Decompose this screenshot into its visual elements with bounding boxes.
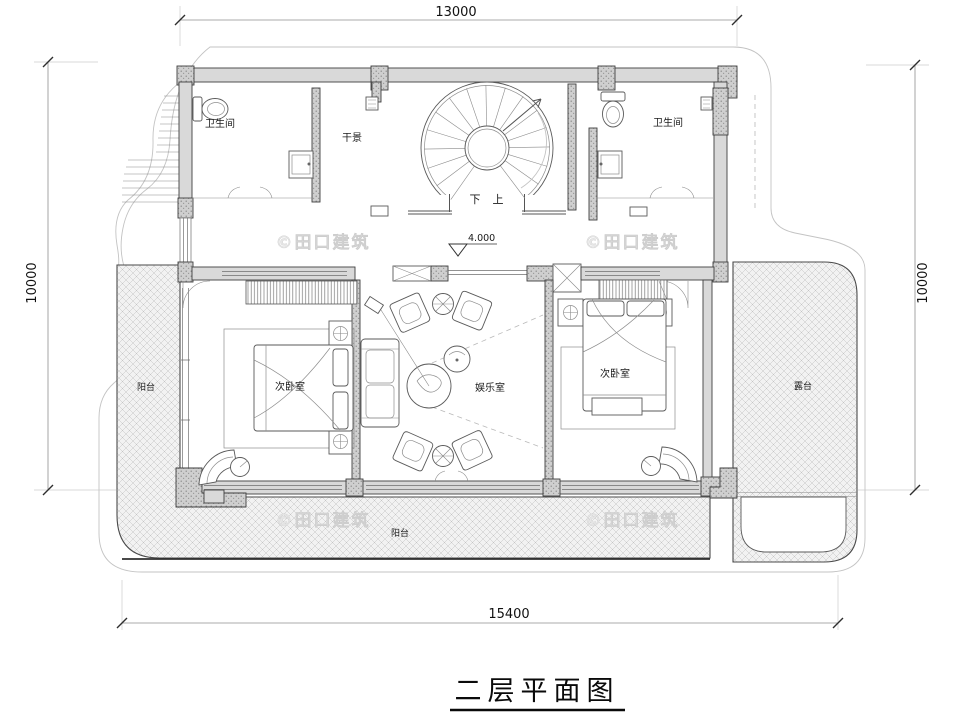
- wall-chunk: [431, 266, 448, 281]
- niche: [630, 207, 647, 216]
- armchair: [451, 290, 492, 331]
- watermark: ©田口建筑: [585, 232, 680, 253]
- dim-bottom-value: 15400: [488, 607, 529, 622]
- lounge-chair: [659, 447, 697, 482]
- title-text: 二层平面图: [455, 676, 620, 707]
- sofa: [361, 339, 399, 427]
- column: [178, 198, 193, 218]
- top-wall: [179, 68, 737, 82]
- wall-insert: [204, 490, 224, 503]
- x-window: [393, 266, 431, 281]
- stair-hall-east-wall: [568, 84, 576, 210]
- stair-down-label: 下: [470, 193, 481, 206]
- column: [713, 88, 728, 135]
- side-table: [231, 458, 250, 477]
- column: [178, 262, 193, 282]
- door-bath-left: [192, 187, 312, 198]
- side-table: [642, 457, 661, 476]
- bath-left-partition: [312, 88, 320, 202]
- elevation-marker: 4.000: [449, 233, 497, 256]
- door-bottom: [435, 471, 468, 481]
- elevation-value: 4.000: [468, 233, 495, 244]
- bath-right-partition: [589, 128, 597, 220]
- nightstand: [329, 321, 352, 346]
- label-balcony-bottom: 阳台: [391, 527, 409, 539]
- left-window: [180, 218, 191, 262]
- label-bathroom-right: 卫生间: [653, 116, 683, 129]
- door-bedroom-left: [183, 281, 210, 308]
- bed-bench: [592, 398, 642, 415]
- mid-wall-left: [192, 267, 355, 280]
- wardrobe: [599, 280, 667, 301]
- label-bedroom-left: 次卧室: [275, 380, 305, 393]
- left-wall-upper: [179, 82, 192, 200]
- wall-chunk: [527, 266, 553, 281]
- spiral-staircase: 下 上: [408, 82, 566, 225]
- label-dry-landscape: 干景: [342, 132, 362, 144]
- bottom-wall: [192, 481, 710, 494]
- armchair: [392, 431, 434, 472]
- bedroom-right-furniture: [558, 280, 697, 482]
- entertainment-furniture: [361, 290, 543, 472]
- label-terrace: 露台: [794, 380, 812, 392]
- label-balcony-left: 阳台: [137, 381, 155, 393]
- dimension-right: 10000: [858, 60, 931, 495]
- dim-right-value: 10000: [916, 262, 931, 303]
- stair-up-label: 上: [493, 193, 504, 206]
- bathroom-right-fixtures: [598, 92, 712, 216]
- armchair: [451, 429, 493, 471]
- drawing-title: 二层平面图: [450, 676, 625, 710]
- entertainment-east-wall: [545, 280, 553, 482]
- side-table-square: [365, 296, 384, 313]
- watermark: ©田口建筑: [585, 510, 680, 531]
- nightstand: [329, 429, 352, 454]
- round-table-small: [444, 346, 470, 372]
- column: [598, 66, 615, 90]
- terrace-planter: [741, 497, 846, 552]
- label-entertainment: 娱乐室: [475, 381, 505, 394]
- shaft-box: [553, 264, 581, 292]
- column: [713, 262, 728, 282]
- door-bath-right: [597, 187, 713, 198]
- dim-top-value: 13000: [435, 5, 476, 20]
- niche: [371, 206, 388, 216]
- drum-stool: [433, 294, 454, 315]
- mid-wall-right: [581, 267, 714, 280]
- label-bathroom-left: 卫生间: [205, 117, 235, 130]
- floor-plan-drawing: 下 上 4.000: [0, 0, 961, 722]
- column: [346, 479, 363, 496]
- nightstand: [558, 299, 583, 326]
- column: [543, 479, 560, 496]
- dimension-top: 13000: [175, 5, 742, 46]
- watermark: ©田口建筑: [276, 232, 371, 253]
- label-bedroom-right: 次卧室: [600, 367, 630, 380]
- armchair: [389, 292, 431, 333]
- dimension-bottom: 15400: [117, 575, 843, 630]
- wardrobe: [246, 281, 357, 304]
- floor-plan-canvas: 下 上 4.000: [0, 0, 961, 722]
- watermark: ©田口建筑: [276, 510, 371, 531]
- bedroom-right-east-wall: [703, 280, 712, 482]
- dim-left-value: 10000: [25, 262, 40, 303]
- dimension-left: 10000: [25, 57, 116, 495]
- drum-stool: [433, 446, 454, 467]
- bed: [583, 299, 666, 411]
